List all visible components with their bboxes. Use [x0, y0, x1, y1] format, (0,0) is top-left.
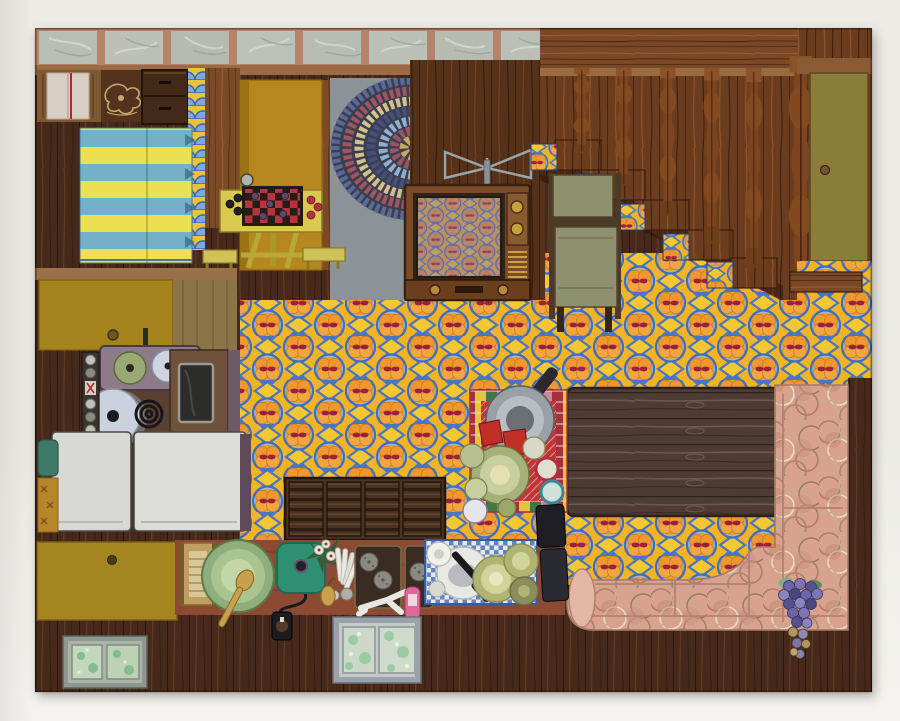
fridge-side-strip — [240, 434, 251, 531]
tv-knob — [511, 223, 523, 235]
stove-control-panel — [82, 352, 99, 440]
window-pane — [333, 617, 421, 683]
sofa-arm-roll — [569, 569, 595, 627]
coffee-table — [567, 388, 790, 516]
nightstand — [142, 70, 188, 124]
mustard-bed — [240, 80, 330, 270]
dresser-with-towel — [37, 70, 101, 122]
painting: Folk-art painting of a house interior se… — [35, 28, 872, 692]
counter-knob — [108, 330, 118, 340]
sink — [355, 546, 433, 614]
teal-block — [38, 440, 58, 476]
refrigerator — [52, 432, 246, 531]
outlet — [272, 612, 292, 640]
picture-frame — [63, 636, 147, 688]
teal-bowl — [541, 481, 563, 503]
stove-side-strip — [228, 350, 240, 440]
wall-shadow — [0, 0, 34, 721]
red-cup — [479, 420, 503, 446]
stair-base-plank — [790, 272, 862, 292]
gold-runner — [38, 478, 58, 532]
white-bowl — [463, 499, 487, 523]
cabinet-knob — [108, 556, 117, 565]
drawer-sideboard — [285, 478, 445, 540]
dish-drying-mat — [425, 540, 538, 605]
tv-knob — [511, 201, 523, 213]
timer — [241, 174, 253, 186]
door-knob — [821, 166, 830, 175]
red-bowl — [536, 458, 558, 480]
carved-panel — [101, 70, 142, 122]
kitchen-counter-mustard — [39, 280, 173, 350]
stair-landing — [540, 28, 798, 70]
lower-cabinet — [37, 542, 177, 620]
painting-canvas — [35, 28, 872, 692]
striped-bed — [80, 128, 195, 263]
oven — [170, 350, 228, 440]
wood-strip-right-of-sofa — [848, 378, 872, 588]
